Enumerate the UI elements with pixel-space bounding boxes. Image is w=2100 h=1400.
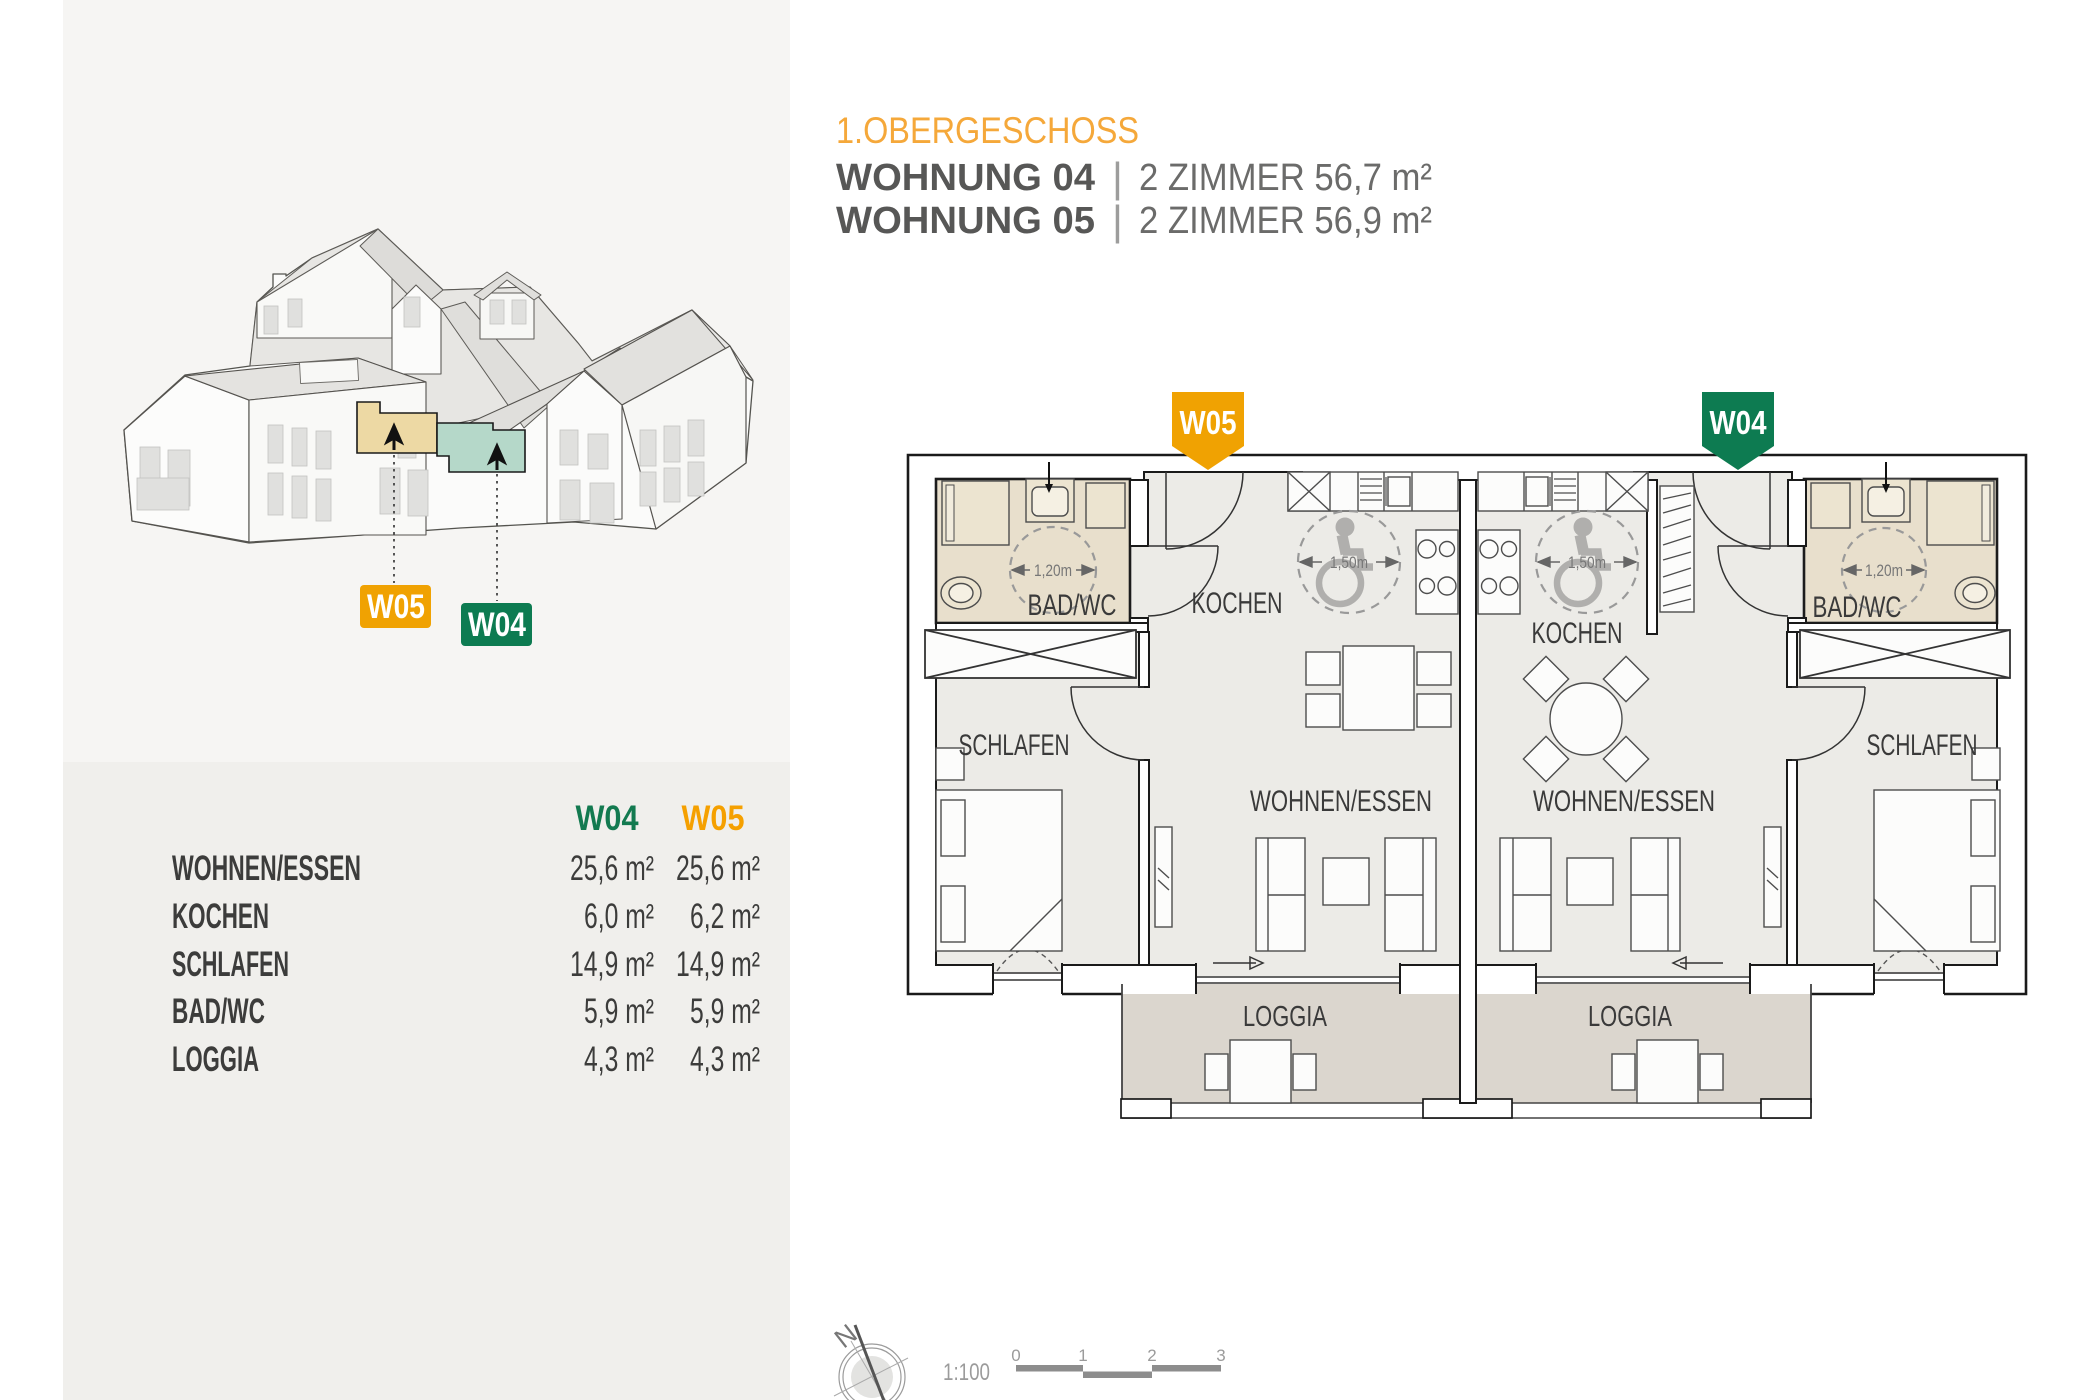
svg-text:1: 1 <box>1078 1346 1087 1365</box>
svg-text:|: | <box>1112 154 1123 201</box>
svg-text:KOCHEN: KOCHEN <box>1192 587 1283 620</box>
svg-text:SCHLAFEN: SCHLAFEN <box>172 945 289 984</box>
svg-text:SCHLAFEN: SCHLAFEN <box>959 729 1070 762</box>
svg-text:LOGGIA: LOGGIA <box>1243 1001 1327 1033</box>
svg-text:W04: W04 <box>468 606 526 644</box>
svg-text:KOCHEN: KOCHEN <box>172 897 269 936</box>
svg-text:KOCHEN: KOCHEN <box>1532 617 1623 650</box>
svg-text:4,3 m²: 4,3 m² <box>584 1040 654 1079</box>
svg-text:3: 3 <box>1216 1346 1225 1365</box>
svg-text:LOGGIA: LOGGIA <box>172 1040 259 1079</box>
svg-text:W05: W05 <box>367 588 425 626</box>
svg-text:1,20m: 1,20m <box>1034 561 1072 580</box>
svg-text:1:100: 1:100 <box>943 1359 990 1386</box>
svg-text:WOHNEN/ESSEN: WOHNEN/ESSEN <box>1533 785 1715 818</box>
svg-text:W04: W04 <box>1710 404 1768 441</box>
svg-text:W05: W05 <box>1180 404 1237 441</box>
svg-text:25,6 m²: 25,6 m² <box>676 849 760 888</box>
svg-text:BAD/WC: BAD/WC <box>1028 589 1117 622</box>
svg-text:W04: W04 <box>576 799 639 838</box>
svg-text:|: | <box>1112 197 1123 244</box>
svg-text:0: 0 <box>1011 1346 1020 1365</box>
svg-text:W05: W05 <box>682 799 745 838</box>
svg-text:5,9 m²: 5,9 m² <box>584 992 654 1031</box>
svg-text:2: 2 <box>1147 1346 1156 1365</box>
svg-text:6,2 m²: 6,2 m² <box>690 897 760 936</box>
svg-text:WOHNUNG 05: WOHNUNG 05 <box>836 200 1095 242</box>
svg-text:6,0 m²: 6,0 m² <box>584 897 654 936</box>
svg-text:LOGGIA: LOGGIA <box>1588 1001 1672 1033</box>
svg-text:BAD/WC: BAD/WC <box>172 992 265 1031</box>
svg-text:1,50m: 1,50m <box>1568 553 1606 572</box>
svg-text:5,9 m²: 5,9 m² <box>690 992 760 1031</box>
svg-text:WOHNEN/ESSEN: WOHNEN/ESSEN <box>1250 785 1432 818</box>
svg-text:SCHLAFEN: SCHLAFEN <box>1867 729 1978 762</box>
svg-text:14,9 m²: 14,9 m² <box>570 945 654 984</box>
svg-text:1,20m: 1,20m <box>1865 561 1903 580</box>
svg-text:WOHNUNG 04: WOHNUNG 04 <box>836 157 1095 199</box>
svg-text:2 ZIMMER 56,7 m²: 2 ZIMMER 56,7 m² <box>1139 157 1432 199</box>
svg-text:WOHNEN/ESSEN: WOHNEN/ESSEN <box>172 849 361 888</box>
svg-text:4,3 m²: 4,3 m² <box>690 1040 760 1079</box>
svg-text:BAD/WC: BAD/WC <box>1813 591 1902 624</box>
svg-text:25,6 m²: 25,6 m² <box>570 849 654 888</box>
svg-text:1,50m: 1,50m <box>1330 553 1368 572</box>
svg-text:1.OBERGESCHOSS: 1.OBERGESCHOSS <box>836 110 1139 151</box>
svg-text:2 ZIMMER 56,9 m²: 2 ZIMMER 56,9 m² <box>1139 200 1432 242</box>
svg-text:14,9 m²: 14,9 m² <box>676 945 760 984</box>
